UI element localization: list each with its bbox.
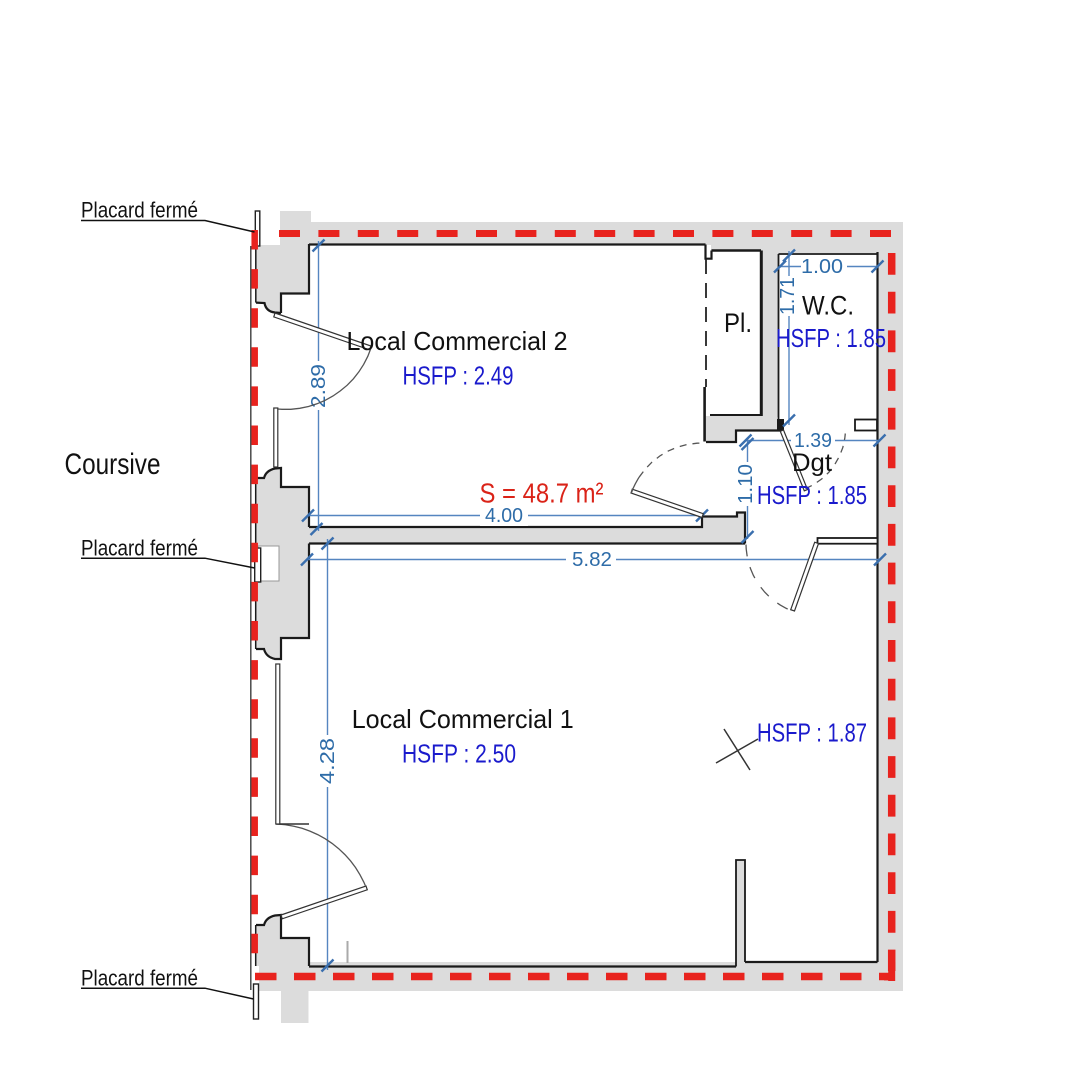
svg-text:HSFP : 1.85: HSFP : 1.85 [776,323,886,353]
svg-text:4.28: 4.28 [317,738,339,784]
svg-text:Dgt: Dgt [792,449,832,477]
svg-text:1.10: 1.10 [735,464,757,504]
svg-text:Placard fermé: Placard fermé [81,536,198,561]
svg-text:2.89: 2.89 [308,364,330,408]
svg-text:5.82: 5.82 [572,549,612,571]
svg-text:HSFP : 2.50: HSFP : 2.50 [402,739,516,769]
svg-text:Pl.: Pl. [724,308,752,338]
svg-text:S = 48.7 m²: S = 48.7 m² [480,478,604,509]
svg-text:1.71: 1.71 [777,277,799,315]
svg-text:Local Commercial 2: Local Commercial 2 [347,326,568,356]
svg-text:Placard fermé: Placard fermé [81,198,198,223]
svg-text:HSFP : 1.85: HSFP : 1.85 [757,480,867,510]
svg-text:Local Commercial 1: Local Commercial 1 [352,704,574,734]
svg-text:HSFP : 2.49: HSFP : 2.49 [403,361,514,391]
svg-text:Coursive: Coursive [65,448,161,481]
svg-text:HSFP : 1.87: HSFP : 1.87 [757,718,867,748]
svg-text:W.C.: W.C. [802,291,854,321]
svg-text:Placard fermé: Placard fermé [81,966,198,991]
svg-text:1.00: 1.00 [801,256,843,278]
